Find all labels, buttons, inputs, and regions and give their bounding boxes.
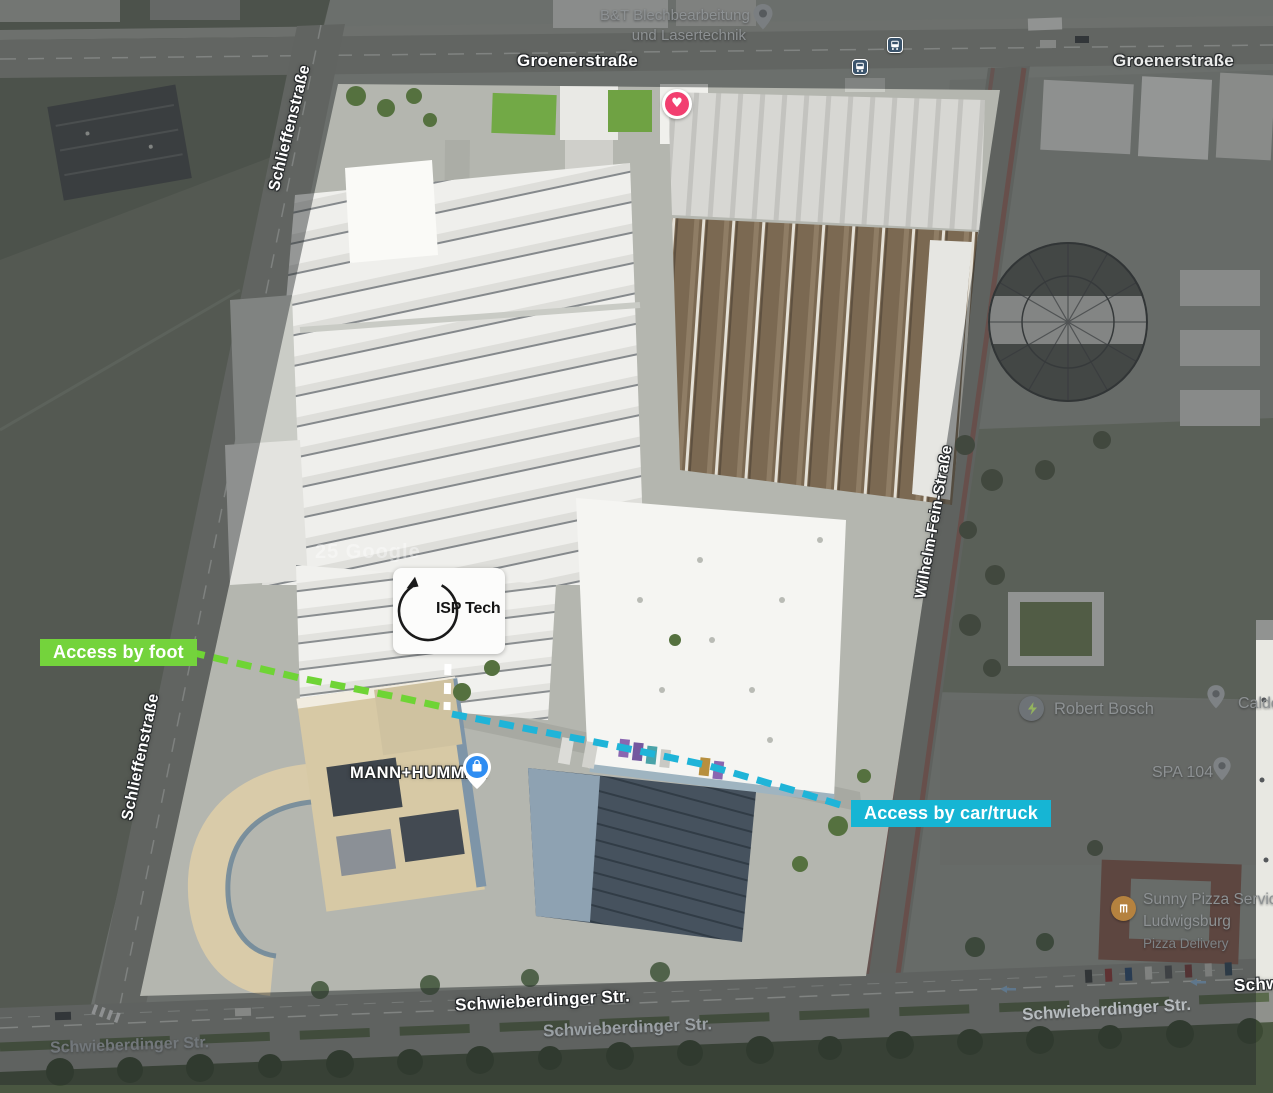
ev-charging-icon[interactable] (1019, 696, 1044, 721)
bus-icon (890, 40, 900, 50)
heart-icon: ♥ (665, 92, 689, 116)
street-label-schwieberdinger-clipped: Schw (1234, 975, 1273, 996)
shopping-bag-icon (462, 752, 492, 790)
poi-label-robert-bosch[interactable]: Robert Bosch (1054, 700, 1154, 718)
satellite-imagery[interactable] (0, 0, 1273, 1093)
poi-label-pizza-subtitle: Pizza Delivery (1143, 933, 1273, 955)
poi-label-bt-line1: B&T Blechbearbeitung (600, 6, 746, 26)
map-pin-icon[interactable] (1206, 684, 1226, 715)
route-connector-dashed (447, 664, 448, 710)
restaurant-icon[interactable] (1111, 896, 1136, 921)
saved-place-heart-marker[interactable]: ♥ (662, 89, 692, 119)
map-pin-icon[interactable] (752, 3, 774, 36)
transit-stop-icon[interactable] (852, 59, 868, 75)
poi-label-calde-clipped[interactable]: Calde (1238, 695, 1273, 713)
street-label-groenerstrasse: Groenerstraße (517, 52, 638, 71)
transit-stop-icon[interactable] (887, 37, 903, 53)
bus-icon (855, 62, 865, 72)
poi-label-pizza-line1: Sunny Pizza Service (1143, 889, 1273, 911)
poi-label-sunny-pizza[interactable]: Sunny Pizza Service Ludwigsburg Pizza De… (1143, 889, 1273, 955)
google-watermark: 25 Google (315, 541, 421, 563)
isp-tech-logo-card: ISP Tech (393, 568, 505, 654)
map-pin-icon[interactable] (1212, 756, 1232, 787)
street-label-groenerstrasse-east: Groenerstraße (1113, 52, 1234, 71)
poi-label-bt-line2: und Lasertechnik (600, 26, 746, 46)
poi-label-bt[interactable]: B&T Blechbearbeitung und Lasertechnik (600, 6, 746, 45)
poi-label-pizza-line2: Ludwigsburg (1143, 911, 1273, 933)
access-by-car-label: Access by car/truck (851, 800, 1051, 827)
mann-hummel-marker[interactable] (462, 752, 492, 795)
isp-tech-logo-text: ISP Tech (436, 600, 501, 618)
poi-label-spa-104[interactable]: SPA 104 (1152, 764, 1213, 782)
access-by-foot-label: Access by foot (40, 639, 197, 666)
map-viewport[interactable]: Groenerstraße Groenerstraße Schlieffenst… (0, 0, 1273, 1093)
